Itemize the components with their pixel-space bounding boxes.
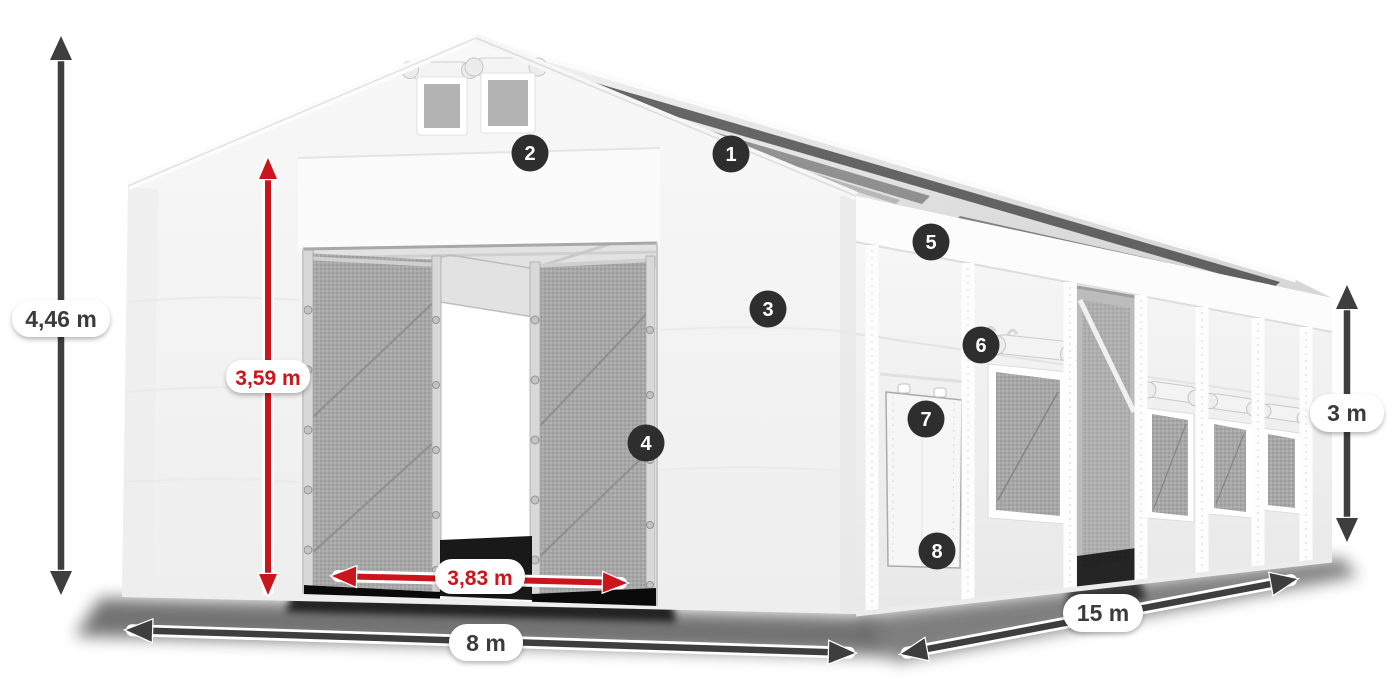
dimension-label-eave-height: 3 m <box>1327 400 1367 426</box>
feature-marker-2[interactable]: 2 <box>512 135 549 172</box>
marker-number: 5 <box>925 232 936 254</box>
feature-marker-4[interactable]: 4 <box>628 425 665 462</box>
marker-number: 6 <box>975 335 986 357</box>
arrow-head-up <box>1336 285 1358 309</box>
front-right-corner-shade <box>840 196 856 614</box>
dimension-label-ridge-height: 4,46 m <box>25 306 97 332</box>
arrow-head-down <box>50 571 72 595</box>
marker-number: 1 <box>725 144 736 166</box>
dimension-label-side-length: 15 m <box>1077 600 1129 626</box>
dimension-label-gable-width: 8 m <box>466 630 506 656</box>
marker-number: 8 <box>931 541 942 563</box>
marker-number: 3 <box>762 299 773 321</box>
mesh-door-left <box>303 250 441 592</box>
feature-marker-7[interactable]: 7 <box>908 401 945 438</box>
vent-mesh <box>488 80 528 126</box>
door-tab-1 <box>898 384 910 393</box>
window-mesh <box>1268 434 1295 508</box>
marker-number: 7 <box>920 409 931 431</box>
marker-number: 2 <box>524 143 535 165</box>
dimension-label-door-width: 3,83 m <box>447 567 512 590</box>
dimension-ridge-height: 4,46 m <box>12 36 110 595</box>
dimension-label-door-height: 3,59 m <box>235 367 300 390</box>
door-header-band <box>298 148 660 252</box>
marker-number: 4 <box>640 433 652 455</box>
feature-marker-3[interactable]: 3 <box>750 291 787 328</box>
front-opening-interior <box>300 240 660 610</box>
mesh-door-middle <box>530 244 655 604</box>
open-bay-mesh <box>1082 300 1130 568</box>
feature-marker-1[interactable]: 1 <box>713 136 750 173</box>
door-tab-2 <box>934 388 946 397</box>
feature-marker-5[interactable]: 5 <box>913 224 950 261</box>
roll-cap <box>465 58 483 76</box>
open-side-bay <box>1077 287 1136 588</box>
tent-diagram-canvas: 4,46 m 3,59 m 3,83 m 8 m <box>0 0 1400 700</box>
feature-marker-8[interactable]: 8 <box>919 533 956 570</box>
arrow-head-down <box>1336 518 1358 542</box>
scaffold-post <box>303 250 313 590</box>
arrow-head-up <box>50 36 72 60</box>
feature-marker-6[interactable]: 6 <box>963 327 1000 364</box>
window-mesh <box>996 372 1060 516</box>
tent-product-diagram: 4,46 m 3,59 m 3,83 m 8 m <box>0 0 1400 700</box>
vent-mesh <box>424 84 460 128</box>
scaffold-post <box>432 256 441 592</box>
